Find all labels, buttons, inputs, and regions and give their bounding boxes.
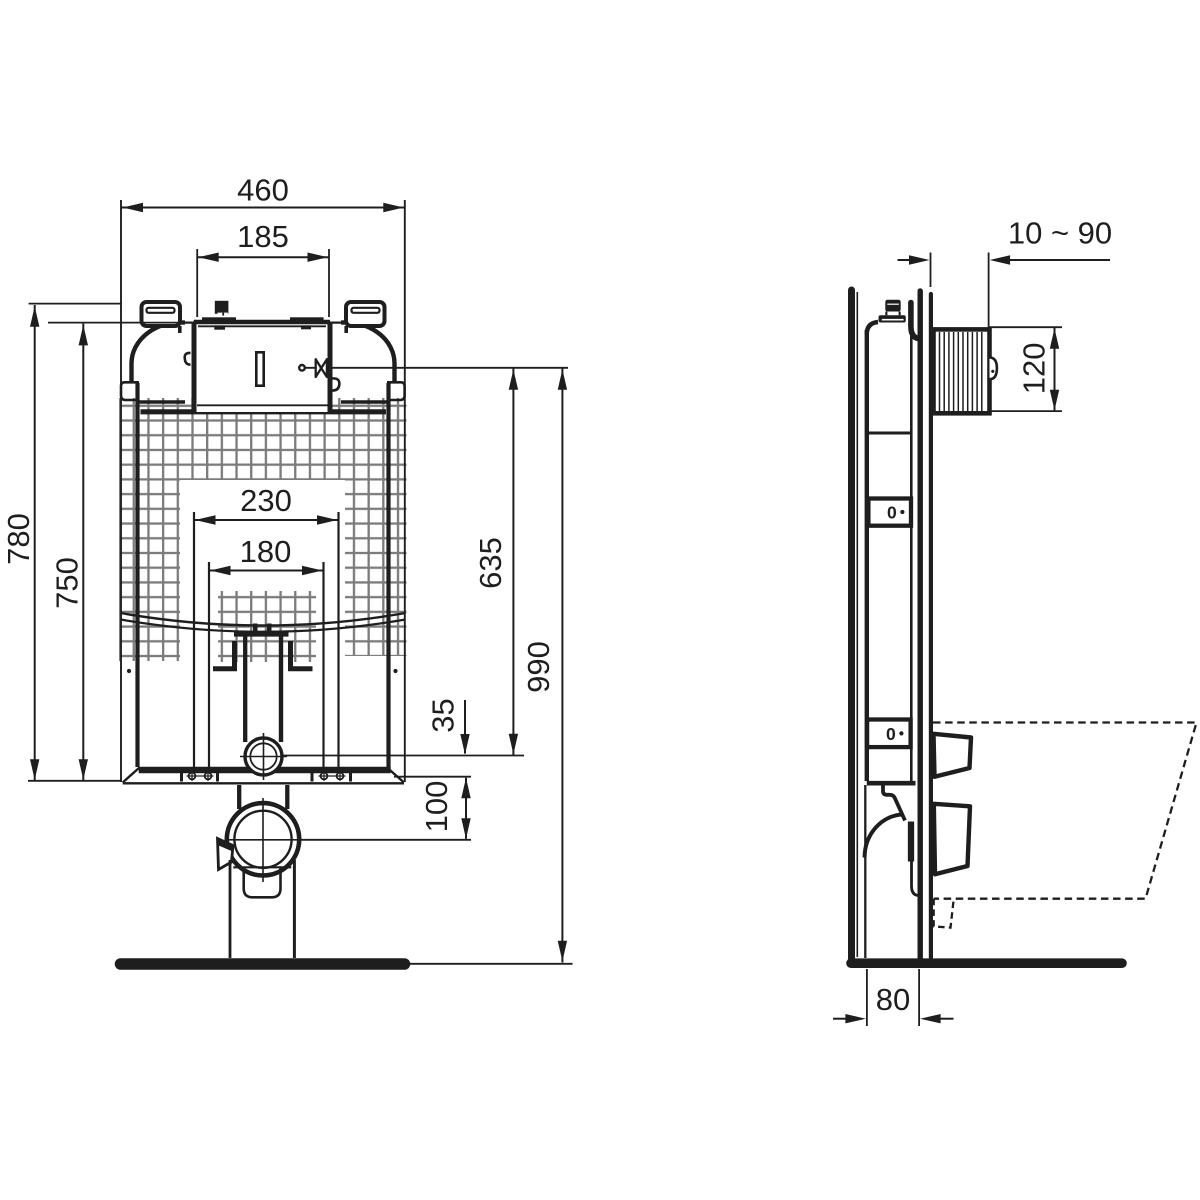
svg-text:230: 230 — [240, 483, 292, 518]
svg-text:990: 990 — [521, 641, 556, 693]
svg-text:0: 0 — [886, 724, 896, 744]
svg-text:635: 635 — [473, 537, 508, 589]
svg-text:10 ~ 90: 10 ~ 90 — [1008, 216, 1112, 251]
svg-text:35: 35 — [426, 698, 461, 732]
svg-text:780: 780 — [1, 513, 36, 565]
svg-text:100: 100 — [419, 781, 454, 833]
svg-text:0: 0 — [887, 502, 897, 522]
svg-text:750: 750 — [50, 557, 85, 609]
svg-text:120: 120 — [1017, 343, 1052, 395]
svg-text:185: 185 — [237, 219, 289, 254]
svg-text:460: 460 — [237, 173, 289, 208]
svg-text:80: 80 — [876, 982, 910, 1017]
svg-text:180: 180 — [240, 534, 292, 569]
